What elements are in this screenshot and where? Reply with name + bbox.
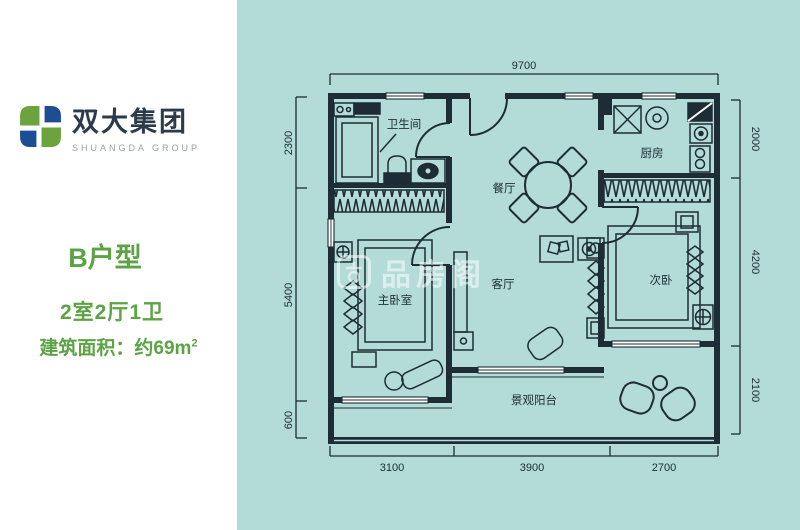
dim-right-1: 2000	[749, 127, 761, 151]
room-label-bathroom: 卫生间	[387, 117, 422, 131]
unit-area: 建筑面积：约69m2	[0, 333, 237, 360]
dining-table	[508, 146, 587, 223]
room-label-balcony: 景观阳台	[511, 393, 557, 407]
dimension-labels: 9700 3100 3900 2700 2300 5400 600 2000 4…	[283, 60, 761, 474]
room-label-living-room: 客厅	[492, 277, 515, 291]
unit-area-sup: 2	[191, 338, 197, 350]
unit-type-title: B户型	[0, 236, 210, 275]
brand-text: 双大集团 SHUANGDA GROUP	[72, 100, 200, 153]
outer-walls	[328, 93, 720, 444]
dim-right-3: 2100	[749, 378, 761, 402]
dim-left-1: 2300	[283, 131, 295, 155]
dim-bottom-1: 3100	[380, 462, 404, 474]
living-room-furniture	[454, 236, 604, 363]
shuangda-logo-icon	[18, 104, 63, 149]
brand-logo: 双大集团 SHUANGDA GROUP	[18, 100, 223, 153]
dim-left-3: 600	[283, 411, 295, 429]
room-label-master-bedroom: 主卧室	[378, 293, 413, 307]
unit-area-text: 建筑面积：约69m	[39, 338, 191, 359]
room-label-kitchen: 厨房	[641, 147, 664, 160]
unit-room-count: 2室2厅1卫	[0, 296, 224, 326]
balcony-furniture	[617, 376, 699, 425]
dim-bottom-3: 2700	[652, 462, 676, 474]
room-label-dining: 餐厅	[493, 181, 516, 195]
floorplan-page: { "colors": { "background": "#b3dbd7", "…	[0, 0, 800, 530]
second-bedroom-furniture	[608, 212, 713, 329]
brand-name-en: SHUANGDA GROUP	[72, 143, 200, 153]
dim-top: 9700	[512, 60, 536, 72]
master-bedroom-furniture	[334, 240, 445, 391]
dim-right-2: 4200	[749, 250, 761, 274]
room-labels: 卫生间 餐厅 厨房 主卧室 客厅 次卧 景观阳台	[378, 117, 673, 407]
dim-bottom-2: 3900	[520, 462, 544, 474]
brand-name-cn: 双大集团	[72, 100, 200, 139]
kitchen-fixtures	[614, 103, 712, 172]
room-label-second-bedroom: 次卧	[650, 273, 673, 287]
info-panel: 双大集团 SHUANGDA GROUP B户型 2室2厅1卫 建筑面积：约69m…	[0, 0, 237, 530]
bathroom-fixtures	[334, 103, 445, 183]
dim-left-2: 5400	[283, 283, 295, 307]
window-center-lines	[331, 96, 700, 408]
